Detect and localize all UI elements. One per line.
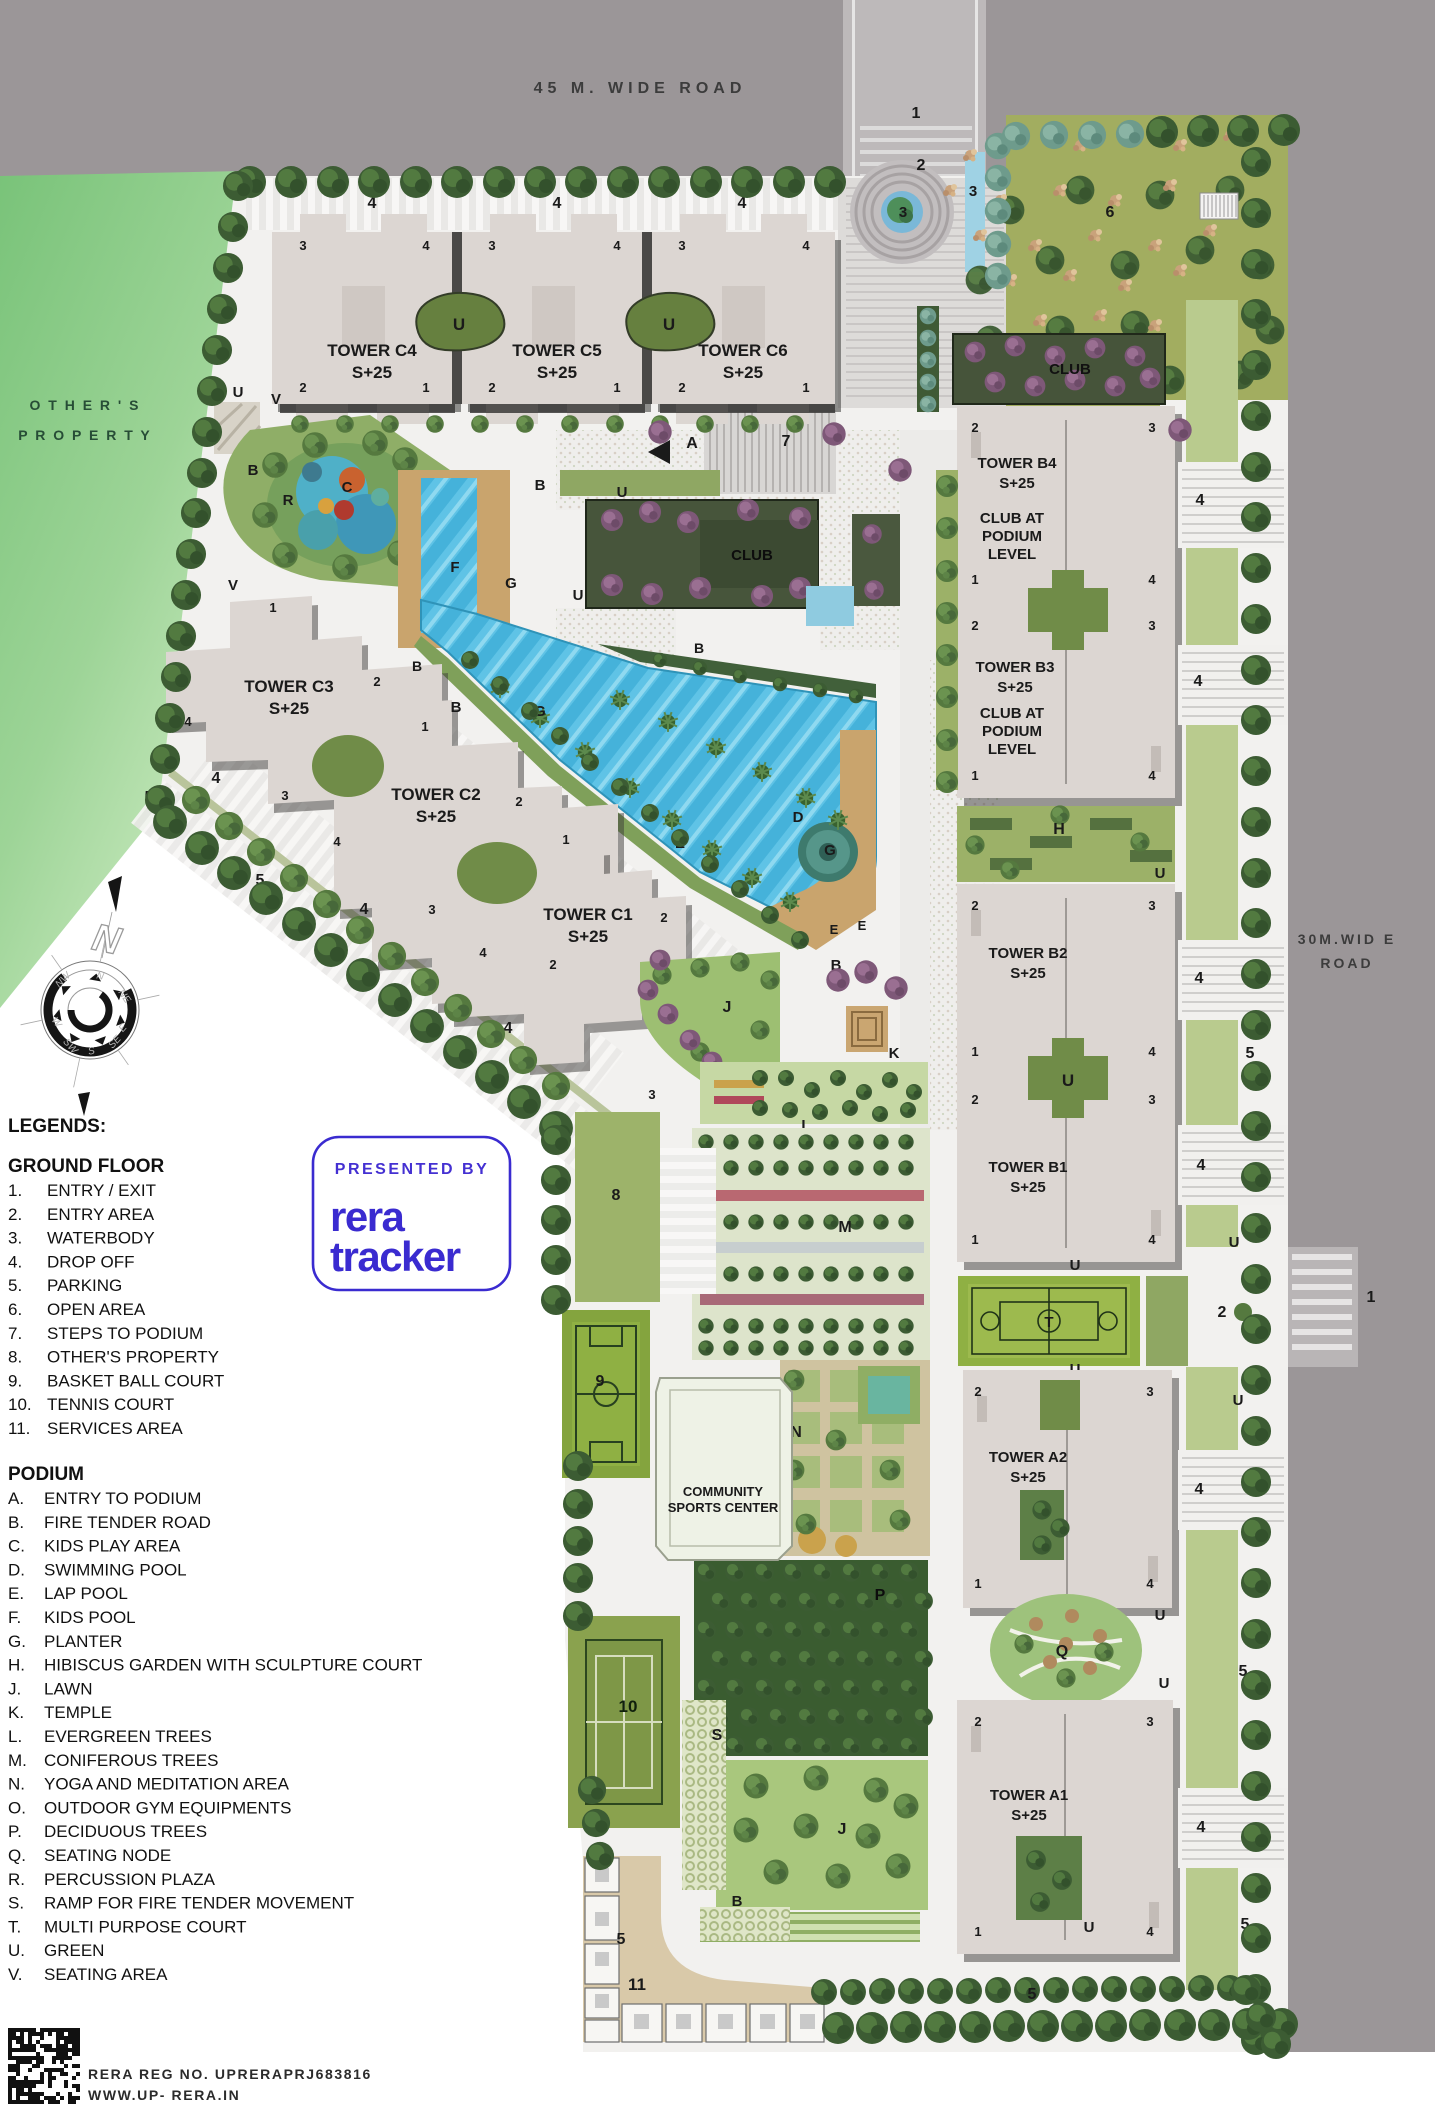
svg-text:U: U <box>1229 1234 1240 1251</box>
svg-text:O T H E R ' S: O T H E R ' S <box>29 397 140 413</box>
svg-text:S+25: S+25 <box>1011 1807 1046 1824</box>
svg-text:LEVEL: LEVEL <box>988 546 1036 563</box>
svg-text:TOWER C5: TOWER C5 <box>512 341 601 360</box>
svg-text:M.: M. <box>8 1751 27 1770</box>
svg-text:4.: 4. <box>8 1252 22 1271</box>
svg-text:4: 4 <box>1197 1157 1206 1174</box>
svg-text:1: 1 <box>912 105 921 122</box>
svg-text:B.: B. <box>8 1513 24 1532</box>
svg-text:3: 3 <box>428 902 435 917</box>
svg-text:TOWER B1: TOWER B1 <box>989 1159 1068 1176</box>
svg-text:3: 3 <box>1148 420 1155 435</box>
svg-text:E.: E. <box>8 1584 24 1603</box>
svg-text:G.: G. <box>8 1632 26 1651</box>
svg-text:S: S <box>712 1727 723 1744</box>
svg-text:E: E <box>858 918 867 933</box>
svg-text:U.: U. <box>8 1941 25 1960</box>
svg-text:1: 1 <box>971 572 978 587</box>
svg-text:U: U <box>233 384 244 401</box>
svg-text:B: B <box>248 462 259 479</box>
svg-text:8: 8 <box>612 1187 621 1204</box>
svg-text:TOWER C2: TOWER C2 <box>391 785 480 804</box>
svg-text:B: B <box>694 640 704 656</box>
svg-text:2: 2 <box>299 380 306 395</box>
svg-text:TOWER C1: TOWER C1 <box>543 905 632 924</box>
svg-text:1: 1 <box>613 380 620 395</box>
svg-text:SPORTS CENTER: SPORTS CENTER <box>668 1500 779 1515</box>
svg-text:4: 4 <box>613 238 621 253</box>
svg-text:B: B <box>535 477 546 494</box>
svg-text:T: T <box>1044 1314 1053 1331</box>
svg-text:CONIFEROUS TREES: CONIFEROUS TREES <box>44 1751 218 1770</box>
svg-text:S+25: S+25 <box>723 363 763 382</box>
svg-text:KIDS POOL: KIDS POOL <box>44 1608 136 1627</box>
svg-text:CLUB: CLUB <box>731 547 773 564</box>
svg-text:ENTRY TO PODIUM: ENTRY TO PODIUM <box>44 1489 201 1508</box>
svg-text:STEPS TO PODIUM: STEPS TO PODIUM <box>47 1324 203 1343</box>
svg-text:9: 9 <box>596 1373 605 1390</box>
svg-text:PERCUSSION PLAZA: PERCUSSION PLAZA <box>44 1870 216 1889</box>
svg-text:7.: 7. <box>8 1324 22 1343</box>
svg-text:2: 2 <box>917 157 926 174</box>
svg-text:2: 2 <box>971 1092 978 1107</box>
svg-text:SERVICES AREA: SERVICES AREA <box>47 1419 183 1438</box>
svg-text:5: 5 <box>1028 1986 1037 2003</box>
svg-text:LAP POOL: LAP POOL <box>44 1584 128 1603</box>
svg-text:3: 3 <box>1146 1384 1153 1399</box>
svg-text:F.: F. <box>8 1608 21 1627</box>
svg-text:TOWER C4: TOWER C4 <box>327 341 417 360</box>
svg-text:TOWER A2: TOWER A2 <box>989 1449 1067 1466</box>
svg-text:2: 2 <box>1218 1304 1227 1321</box>
svg-text:B: B <box>732 1893 743 1910</box>
svg-text:PRESENTED BY: PRESENTED BY <box>335 1161 489 1178</box>
svg-text:CLUB: CLUB <box>1049 361 1091 378</box>
svg-text:U: U <box>1062 1071 1074 1090</box>
svg-text:2: 2 <box>515 794 522 809</box>
svg-text:LEGENDS:: LEGENDS: <box>8 1116 106 1137</box>
svg-text:1: 1 <box>971 1232 978 1247</box>
svg-text:2: 2 <box>660 910 667 925</box>
svg-text:M: M <box>838 1219 851 1236</box>
svg-text:5: 5 <box>617 1931 626 1948</box>
svg-text:RERA REG NO. UPRERAPRJ683816: RERA REG NO. UPRERAPRJ683816 <box>88 2066 372 2082</box>
svg-text:RAMP FOR FIRE TENDER MOVEMENT: RAMP FOR FIRE TENDER MOVEMENT <box>44 1894 354 1913</box>
svg-text:G: G <box>824 842 836 859</box>
svg-text:TEMPLE: TEMPLE <box>44 1703 112 1722</box>
svg-text:V: V <box>271 391 281 408</box>
svg-text:3.: 3. <box>8 1229 22 1248</box>
svg-text:ENTRY AREA: ENTRY AREA <box>47 1205 155 1224</box>
svg-text:C.: C. <box>8 1537 25 1556</box>
svg-text:R.: R. <box>8 1870 25 1889</box>
svg-text:S+25: S+25 <box>568 927 608 946</box>
svg-text:T.: T. <box>8 1917 21 1936</box>
svg-text:U: U <box>617 484 628 501</box>
svg-text:4: 4 <box>1148 572 1156 587</box>
svg-text:3: 3 <box>281 788 288 803</box>
svg-text:1: 1 <box>1367 1289 1376 1306</box>
svg-text:G: G <box>505 575 517 592</box>
svg-text:U: U <box>1155 1607 1166 1624</box>
svg-text:2: 2 <box>971 618 978 633</box>
svg-text:S+25: S+25 <box>269 699 309 718</box>
svg-text:2: 2 <box>974 1714 981 1729</box>
svg-text:tracker: tracker <box>330 1233 461 1280</box>
svg-text:1: 1 <box>802 380 809 395</box>
svg-text:YOGA AND MEDITATION AREA: YOGA AND MEDITATION AREA <box>44 1775 290 1794</box>
svg-text:45 M. WIDE ROAD: 45 M. WIDE ROAD <box>534 80 747 97</box>
svg-text:3: 3 <box>1146 1714 1153 1729</box>
svg-text:4: 4 <box>1195 1481 1204 1498</box>
svg-text:5: 5 <box>1246 1045 1255 1062</box>
svg-text:4: 4 <box>1148 1044 1156 1059</box>
svg-text:DECIDUOUS TREES: DECIDUOUS TREES <box>44 1822 207 1841</box>
svg-text:S+25: S+25 <box>1010 965 1045 982</box>
svg-text:TOWER C6: TOWER C6 <box>698 341 787 360</box>
svg-text:R: R <box>283 492 294 509</box>
svg-text:S+25: S+25 <box>416 807 456 826</box>
svg-text:4: 4 <box>333 834 341 849</box>
svg-text:ENTRY / EXIT: ENTRY / EXIT <box>47 1181 156 1200</box>
svg-text:3: 3 <box>899 204 907 221</box>
svg-text:SEATING AREA: SEATING AREA <box>44 1965 168 1984</box>
svg-text:H: H <box>1053 821 1065 838</box>
svg-text:2: 2 <box>971 898 978 913</box>
svg-text:BASKET BALL COURT: BASKET BALL COURT <box>47 1371 224 1390</box>
svg-text:3: 3 <box>299 238 306 253</box>
svg-text:P R O P E R T Y: P R O P E R T Y <box>18 427 151 443</box>
svg-text:U: U <box>1155 865 1166 882</box>
svg-text:3: 3 <box>1148 898 1155 913</box>
svg-text:U: U <box>453 315 465 334</box>
svg-text:4: 4 <box>1197 1819 1206 1836</box>
svg-text:LAWN: LAWN <box>44 1679 93 1698</box>
svg-text:1: 1 <box>974 1924 981 1939</box>
svg-text:1: 1 <box>422 380 429 395</box>
svg-text:D.: D. <box>8 1560 25 1579</box>
svg-text:S+25: S+25 <box>352 363 392 382</box>
svg-text:U: U <box>1159 1675 1170 1692</box>
svg-text:PODIUM: PODIUM <box>8 1464 84 1485</box>
svg-text:U: U <box>663 315 675 334</box>
svg-text:MULTI PURPOSE COURT: MULTI PURPOSE COURT <box>44 1917 246 1936</box>
svg-text:Q.: Q. <box>8 1846 26 1865</box>
svg-text:A.: A. <box>8 1489 24 1508</box>
svg-text:2.: 2. <box>8 1205 22 1224</box>
svg-text:COMMUNITY: COMMUNITY <box>683 1484 763 1499</box>
svg-text:TOWER B3: TOWER B3 <box>976 659 1055 676</box>
svg-text:P: P <box>875 1587 886 1604</box>
svg-text:3: 3 <box>648 1087 655 1102</box>
svg-text:2: 2 <box>488 380 495 395</box>
svg-text:4: 4 <box>1146 1924 1154 1939</box>
svg-text:L.: L. <box>8 1727 22 1746</box>
svg-text:1: 1 <box>974 1576 981 1591</box>
svg-text:J: J <box>838 1821 847 1838</box>
svg-text:CLUB AT: CLUB AT <box>980 705 1044 722</box>
svg-text:4: 4 <box>1148 1232 1156 1247</box>
svg-text:4: 4 <box>1146 1576 1154 1591</box>
svg-text:4: 4 <box>184 714 192 729</box>
svg-text:10: 10 <box>619 1697 638 1716</box>
svg-text:EVERGREEN TREES: EVERGREEN TREES <box>44 1727 212 1746</box>
svg-text:4: 4 <box>479 945 487 960</box>
svg-text:8.: 8. <box>8 1348 22 1367</box>
svg-text:F: F <box>450 559 459 576</box>
svg-text:9.: 9. <box>8 1371 22 1390</box>
svg-text:U: U <box>573 587 584 604</box>
svg-text:V: V <box>228 577 238 594</box>
svg-text:SEATING NODE: SEATING NODE <box>44 1846 171 1865</box>
svg-text:PLANTER: PLANTER <box>44 1632 122 1651</box>
svg-text:GROUND FLOOR: GROUND FLOOR <box>8 1156 164 1177</box>
svg-text:OPEN AREA: OPEN AREA <box>47 1300 146 1319</box>
svg-text:1: 1 <box>971 768 978 783</box>
svg-text:K.: K. <box>8 1703 24 1722</box>
svg-text:4: 4 <box>553 195 562 212</box>
svg-text:FIRE TENDER ROAD: FIRE TENDER ROAD <box>44 1513 211 1532</box>
svg-text:LEVEL: LEVEL <box>988 741 1036 758</box>
svg-text:3: 3 <box>488 238 495 253</box>
svg-text:TOWER B2: TOWER B2 <box>989 945 1068 962</box>
svg-text:Q: Q <box>1056 1643 1068 1660</box>
svg-text:WATERBODY: WATERBODY <box>47 1229 155 1248</box>
svg-text:KIDS PLAY AREA: KIDS PLAY AREA <box>44 1537 181 1556</box>
svg-text:4: 4 <box>1194 673 1203 690</box>
svg-text:1: 1 <box>421 719 428 734</box>
svg-text:TENNIS COURT: TENNIS COURT <box>47 1395 174 1414</box>
svg-text:2: 2 <box>373 674 380 689</box>
svg-text:4: 4 <box>802 238 810 253</box>
svg-text:S.: S. <box>8 1894 24 1913</box>
svg-text:11.: 11. <box>8 1419 30 1438</box>
svg-text:3: 3 <box>1148 1092 1155 1107</box>
svg-text:2: 2 <box>971 420 978 435</box>
svg-text:C: C <box>342 479 353 496</box>
svg-text:1: 1 <box>562 832 569 847</box>
svg-text:TOWER B4: TOWER B4 <box>978 455 1058 472</box>
svg-text:4: 4 <box>422 238 430 253</box>
svg-text:N.: N. <box>8 1775 25 1794</box>
svg-text:3: 3 <box>1148 618 1155 633</box>
svg-text:J.: J. <box>8 1679 21 1698</box>
svg-text:ROAD: ROAD <box>1320 955 1373 971</box>
svg-text:4: 4 <box>1196 492 1205 509</box>
svg-text:P.: P. <box>8 1822 22 1841</box>
svg-text:U: U <box>1070 1257 1081 1274</box>
svg-text:4: 4 <box>1148 768 1156 783</box>
svg-text:6: 6 <box>1106 204 1115 221</box>
svg-text:SWIMMING POOL: SWIMMING POOL <box>44 1560 187 1579</box>
svg-text:TOWER A1: TOWER A1 <box>990 1787 1068 1804</box>
svg-text:PODIUM: PODIUM <box>982 528 1042 545</box>
svg-text:30M.WID E: 30M.WID E <box>1298 931 1397 947</box>
svg-text:10.: 10. <box>8 1395 32 1414</box>
svg-text:O.: O. <box>8 1798 26 1817</box>
svg-text:B: B <box>412 658 422 674</box>
svg-text:V.: V. <box>8 1965 23 1984</box>
svg-text:2: 2 <box>974 1384 981 1399</box>
svg-text:S+25: S+25 <box>999 475 1034 492</box>
svg-text:U: U <box>1084 1919 1095 1936</box>
svg-text:GREEN: GREEN <box>44 1941 104 1960</box>
svg-text:1: 1 <box>971 1044 978 1059</box>
svg-text:B: B <box>451 699 462 716</box>
svg-text:7: 7 <box>782 433 791 450</box>
svg-text:PODIUM: PODIUM <box>982 723 1042 740</box>
svg-text:DROP OFF: DROP OFF <box>47 1252 135 1271</box>
svg-text:TOWER C3: TOWER C3 <box>244 677 333 696</box>
svg-text:4: 4 <box>212 770 221 787</box>
svg-text:H.: H. <box>8 1656 25 1675</box>
svg-text:J: J <box>723 999 732 1016</box>
svg-text:2: 2 <box>549 957 556 972</box>
svg-text:2: 2 <box>678 380 685 395</box>
svg-text:U: U <box>1233 1392 1244 1409</box>
svg-text:6.: 6. <box>8 1300 22 1319</box>
svg-text:WWW.UP- RERA.IN: WWW.UP- RERA.IN <box>88 2087 240 2103</box>
svg-text:OTHER'S PROPERTY: OTHER'S PROPERTY <box>47 1348 219 1367</box>
svg-text:PARKING: PARKING <box>47 1276 122 1295</box>
svg-text:11: 11 <box>628 1975 646 1994</box>
svg-text:K: K <box>889 1045 900 1062</box>
svg-text:E: E <box>830 922 839 937</box>
svg-text:A: A <box>686 435 698 452</box>
svg-text:HIBISCUS GARDEN WITH SCULPTURE: HIBISCUS GARDEN WITH SCULPTURE COURT <box>44 1656 422 1675</box>
svg-text:S+25: S+25 <box>1010 1469 1045 1486</box>
svg-text:1.: 1. <box>8 1181 22 1200</box>
svg-text:S+25: S+25 <box>1010 1179 1045 1196</box>
svg-text:S+25: S+25 <box>537 363 577 382</box>
svg-text:CLUB AT: CLUB AT <box>980 510 1044 527</box>
svg-text:D: D <box>793 809 804 826</box>
svg-text:4: 4 <box>360 901 369 918</box>
svg-text:5.: 5. <box>8 1276 22 1295</box>
svg-text:S+25: S+25 <box>997 679 1032 696</box>
svg-text:4: 4 <box>1195 970 1204 987</box>
svg-text:OUTDOOR GYM EQUIPMENTS: OUTDOOR GYM EQUIPMENTS <box>44 1798 291 1817</box>
svg-text:3: 3 <box>969 183 977 200</box>
svg-text:1: 1 <box>269 600 276 615</box>
svg-text:3: 3 <box>678 238 685 253</box>
